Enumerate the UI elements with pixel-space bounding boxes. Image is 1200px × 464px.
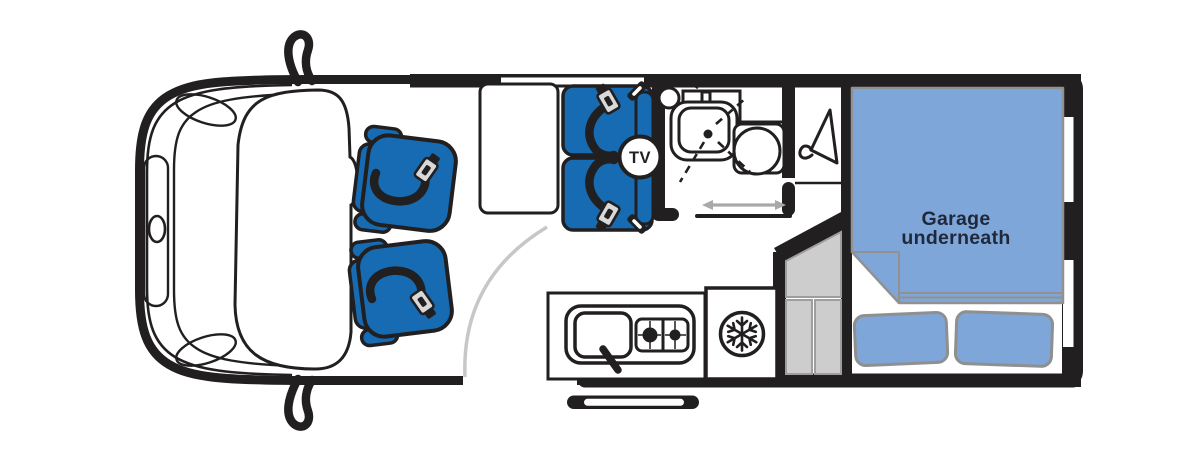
- wall-bathroom-left-stub: [652, 208, 679, 221]
- duvet: [852, 88, 1063, 303]
- bathroom-sink-icon: [659, 88, 740, 160]
- windscreen-dashboard: [235, 90, 358, 369]
- floorplan-svg: TV: [0, 0, 1200, 464]
- pillow-2: [955, 311, 1053, 366]
- kitchen: [548, 288, 777, 379]
- tv-badge: TV: [620, 137, 661, 178]
- bed: Garage underneath: [852, 88, 1063, 367]
- dinette-table: [480, 84, 558, 213]
- garage-label-line2: underneath: [901, 227, 1010, 249]
- wall-door-pocket: [782, 182, 795, 216]
- window-rear-2: [1063, 260, 1074, 347]
- step-1: [786, 300, 812, 374]
- window-rear-1: [1063, 117, 1074, 202]
- step-2: [815, 300, 841, 374]
- entry-step: [567, 396, 699, 410]
- hob-icon: [636, 319, 688, 351]
- motorhome-floorplan: TV: [0, 0, 1200, 464]
- tv-label: TV: [629, 149, 651, 167]
- pillow-1: [854, 312, 948, 366]
- toilet-icon: [734, 124, 784, 174]
- wall-steps-right: [841, 224, 852, 380]
